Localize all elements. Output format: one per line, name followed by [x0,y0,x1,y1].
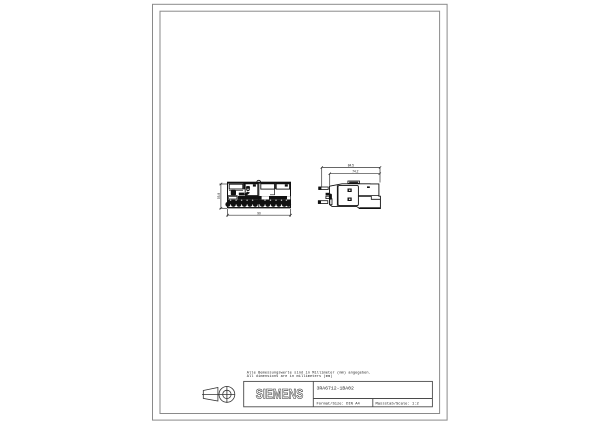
svg-text:53.8: 53.8 [217,193,221,199]
svg-text:74.2: 74.2 [352,170,358,174]
svg-text:SIEMENS: SIEMENS [256,385,303,401]
svg-text:Massstab/Scale: 1:2: Massstab/Scale: 1:2 [376,401,420,406]
svg-text:3RA6712-1BA02: 3RA6712-1BA02 [317,385,355,391]
svg-text:90: 90 [257,211,261,215]
svg-text:84.5: 84.5 [348,163,354,167]
svg-text:Format/Size: DIN A4: Format/Size: DIN A4 [317,401,361,406]
svg-text:All dimensions are in millimet: All dimensions are in millimeters (mm) [247,374,333,379]
